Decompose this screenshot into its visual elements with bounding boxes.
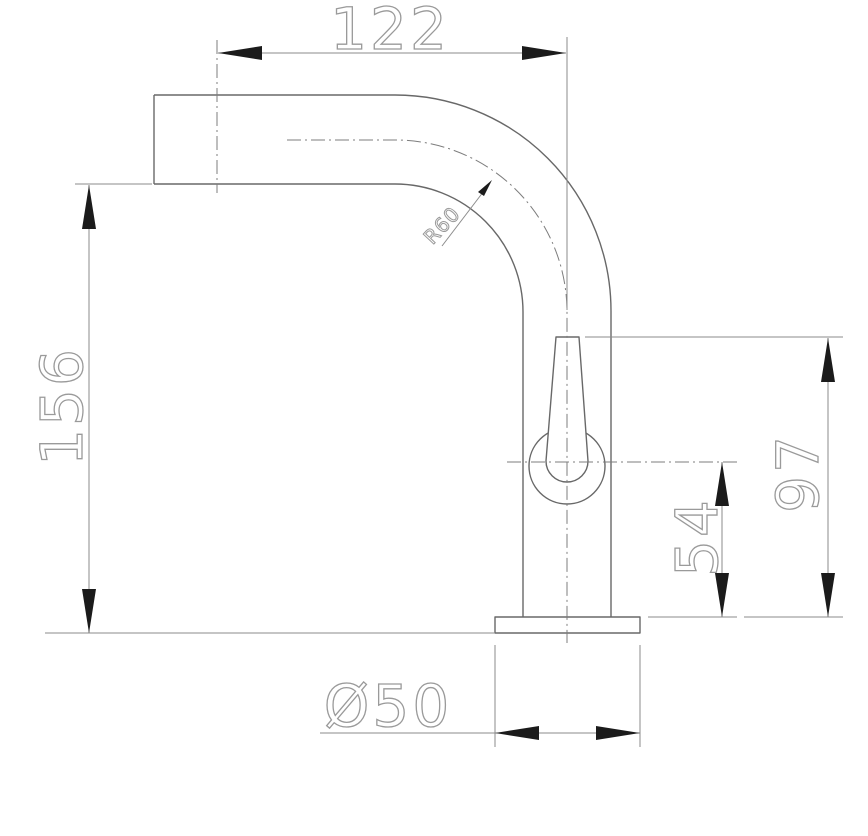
spout-body-centerline — [287, 140, 567, 643]
dimension-handle-center-height: 54 — [663, 462, 731, 617]
arrowhead-156-top — [82, 185, 96, 229]
dimension-bend-radius: R60 — [419, 180, 492, 249]
dim-text-97: 97 — [764, 433, 832, 513]
dimension-base-diameter: Ø50 — [320, 645, 640, 747]
arrowhead-r60 — [478, 180, 492, 196]
arrowhead-156-bottom — [82, 589, 96, 633]
spout-inner-profile — [154, 184, 523, 617]
dim-text-156: 156 — [28, 346, 96, 466]
dimension-spout-reach: 122 — [218, 0, 567, 310]
arrowhead-o50-left — [495, 726, 539, 740]
spout-outer-profile — [154, 95, 611, 617]
arrowhead-54-bottom — [715, 573, 729, 617]
dim-text-o50: Ø50 — [324, 672, 452, 740]
faucet-technical-drawing: 122 156 97 54 Ø50 R60 — [0, 0, 868, 836]
dim-text-54: 54 — [663, 497, 731, 577]
dim-text-122: 122 — [330, 0, 450, 63]
arrowhead-122-left — [218, 46, 262, 60]
dim-text-r60: R60 — [419, 202, 465, 249]
arrowhead-97-top — [821, 338, 835, 382]
arrowhead-122-right — [522, 46, 566, 60]
arrowhead-97-bottom — [821, 573, 835, 617]
dimension-overall-height: 156 — [28, 184, 495, 633]
drawing-canvas: 122 156 97 54 Ø50 R60 — [0, 0, 868, 836]
arrowhead-o50-right — [596, 726, 640, 740]
centerlines — [217, 40, 737, 643]
